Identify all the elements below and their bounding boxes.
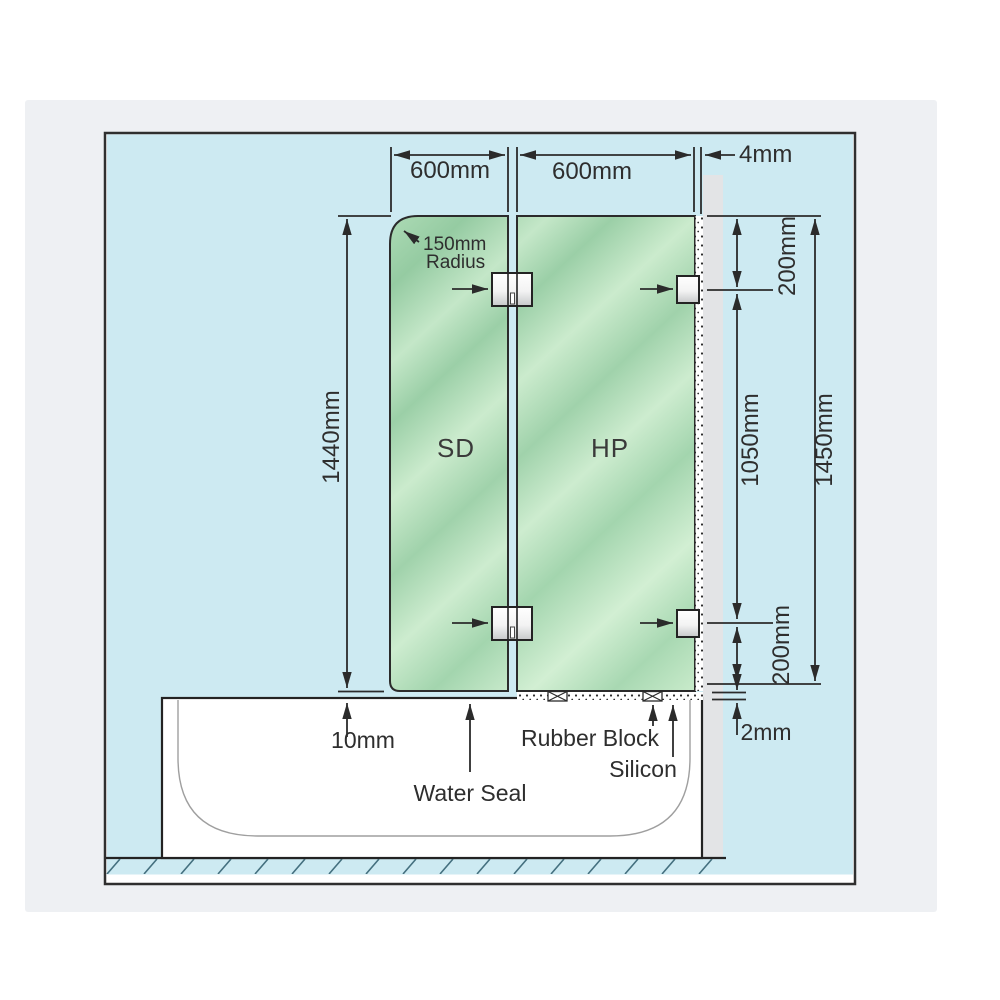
bracket-span-label: 1050mm bbox=[737, 393, 764, 486]
top-offset-label: 200mm bbox=[774, 216, 801, 296]
floor-hatch bbox=[106, 859, 714, 874]
wall-gap-label: 4mm bbox=[739, 141, 792, 168]
sd-height-label: 1440mm bbox=[318, 390, 345, 483]
sd-width-label: 600mm bbox=[410, 157, 490, 184]
rubber-block-left bbox=[548, 692, 567, 702]
wall-bracket-bottom bbox=[677, 610, 699, 637]
wall bbox=[703, 175, 723, 858]
hinge-bottom bbox=[492, 607, 532, 640]
bottom-offset-label: 200mm bbox=[768, 605, 795, 685]
rubber-block-right bbox=[643, 692, 662, 702]
page: 600mm 600mm 4mm 150mm Radius 1440mm 200m… bbox=[0, 0, 1000, 1000]
hp-width-label: 600mm bbox=[552, 158, 632, 185]
wall-bracket-top bbox=[677, 276, 699, 303]
hinge-top bbox=[492, 273, 532, 306]
silicon-bead-bottom-speckle bbox=[517, 692, 703, 700]
installation-diagram: 600mm 600mm 4mm 150mm Radius 1440mm 200m… bbox=[0, 0, 1000, 1000]
panel-hp-label: HP bbox=[591, 433, 629, 463]
silicon-label: Silicon bbox=[609, 756, 677, 782]
base-gap-label: 2mm bbox=[740, 719, 791, 745]
floor-gap-label: 10mm bbox=[331, 727, 395, 753]
rubber-block-label: Rubber Block bbox=[521, 725, 660, 751]
water-seal-label: Water Seal bbox=[414, 780, 527, 806]
radius-caption-label: Radius bbox=[426, 252, 485, 273]
hp-height-label: 1450mm bbox=[811, 393, 838, 486]
panel-sd-label: SD bbox=[437, 433, 475, 463]
